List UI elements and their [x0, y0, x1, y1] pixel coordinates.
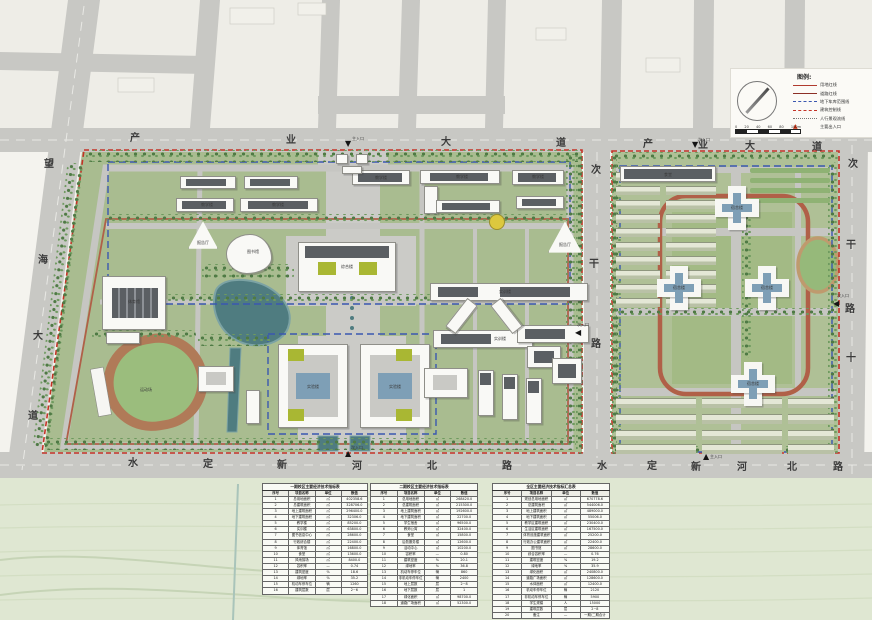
north-compass-icon — [737, 81, 777, 121]
scale-tick: 100m — [791, 125, 801, 129]
compass-needle-icon — [745, 87, 769, 113]
legend-title: 图例: — [797, 72, 811, 81]
legend-item: 地下车库范围线 — [793, 98, 871, 106]
scale-tick: 80 — [779, 125, 783, 129]
scale-tick-labels: 020406080100m — [735, 125, 801, 129]
legend-panel: 图例: 用地红线道路红线地下车库范围线建筑控制线人行景观流线▲主要出入口 020… — [730, 68, 872, 138]
master-plan-map: 产业大道产业大道水定新河北路水定新河北路望海大道次干路次干路十 ▼▼◀◀▲▲ 综… — [0, 0, 872, 620]
dash-blue-symbol — [793, 101, 817, 102]
legend-item: 道路红线 — [793, 89, 871, 97]
legend-item-label: 人行景观流线 — [820, 116, 845, 122]
scale-tick: 40 — [756, 125, 760, 129]
legend-item: 建筑控制线 — [793, 106, 871, 114]
legend-item-label: 主要出入口 — [820, 124, 841, 130]
legend-item-label: 用地红线 — [820, 82, 837, 88]
legend-item-label: 建筑控制线 — [820, 107, 841, 113]
legend-item-label: 道路红线 — [820, 91, 837, 97]
scale-tick: 0 — [735, 125, 737, 129]
scale-bar: 020406080100m — [735, 125, 801, 134]
legend-item: ▲主要出入口 — [793, 123, 871, 131]
legend-item-label: 地下车库范围线 — [820, 99, 849, 105]
scale-tick: 20 — [744, 125, 748, 129]
scale-tick: 60 — [768, 125, 772, 129]
legend-item: 人行景观流线 — [793, 115, 871, 123]
dot-gray-symbol — [793, 118, 817, 119]
legend-item: 用地红线 — [793, 81, 871, 89]
legend-rows: 用地红线道路红线地下车库范围线建筑控制线人行景观流线▲主要出入口 — [793, 81, 871, 131]
dash-red-symbol — [793, 110, 817, 111]
solid-darkred-symbol — [793, 93, 817, 94]
scale-bar-graphic — [735, 129, 801, 134]
solid-red-symbol — [793, 85, 817, 86]
